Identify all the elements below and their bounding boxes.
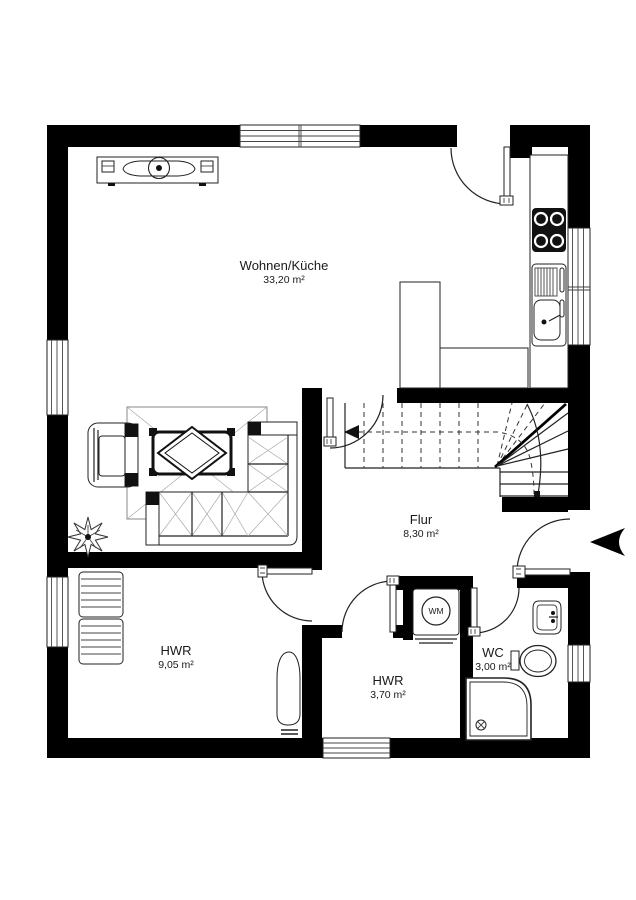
entrance-arrow-icon [590,528,625,556]
window-left-living [47,340,68,415]
room-name: WC [475,645,511,661]
shelf [79,572,123,664]
kitchen-sink-icon [532,264,566,346]
door-entrance [513,519,570,578]
room-area: 9,05 m² [158,659,194,672]
coffee-table [149,427,235,479]
tv-sideboard [97,157,218,186]
room-area: 3,70 m² [370,689,406,702]
armchair [88,423,138,487]
room-name: Flur [403,512,439,528]
washing-machine-label: WM [428,606,443,616]
room-area: 33,20 m² [240,274,329,287]
floor-plan: Wohnen/Küche 33,20 m² Flur 8,30 m² HWR 9… [0,0,636,900]
plant-icon [68,517,108,557]
room-name: Wohnen/Küche [240,258,329,274]
room-label-flur: Flur 8,30 m² [403,512,439,540]
ironing-board-icon [277,652,300,734]
door-terrace [451,147,513,205]
room-name: HWR [158,643,194,659]
stove-icon [532,208,566,252]
room-name: HWR [370,673,406,689]
window-right-kitchen [568,228,590,345]
door-hwr-small [342,576,399,632]
room-area: 3,00 m² [475,661,511,674]
window-top [240,125,360,147]
door-living-hall [324,395,383,448]
wc-sink-icon [533,601,561,634]
door-wc [468,588,519,636]
shower-icon [466,678,531,740]
room-label-wc: WC 3,00 m² [475,645,511,673]
room-area: 8,30 m² [403,528,439,541]
washing-machine-icon [413,589,459,643]
stairs [344,403,568,497]
window-right-wc [568,645,590,682]
floor-plan-drawing [0,0,636,900]
door-hwr-large [258,565,312,621]
room-label-hwr-small: HWR 3,70 m² [370,673,406,701]
room-label-hwr-large: HWR 9,05 m² [158,643,194,671]
toilet-icon [511,646,556,677]
window-left-hwr [47,577,68,647]
window-bottom-hwr [323,738,390,758]
room-label-wohnen-kueche: Wohnen/Küche 33,20 m² [240,258,329,286]
